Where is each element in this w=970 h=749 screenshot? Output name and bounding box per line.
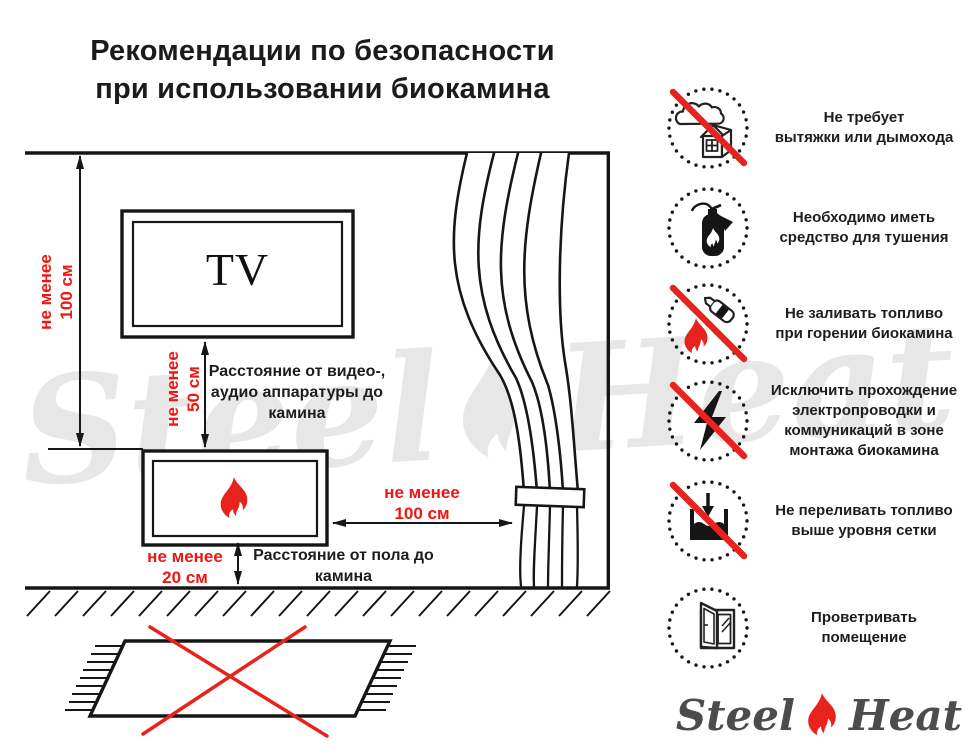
rule-caption: Проветривать помещение xyxy=(762,608,966,648)
steelheat-logo: Steel Heat xyxy=(676,687,962,743)
logo-heat: Heat xyxy=(849,691,962,740)
logo-steel: Steel xyxy=(676,691,795,740)
curtain-distance-label: не менее 100 см xyxy=(356,482,488,525)
tv-distance-label: не менее 50 см xyxy=(162,329,206,449)
floor-distance-label: не менее 20 см xyxy=(136,546,234,589)
no-refuel-while-burning-icon xyxy=(664,280,752,368)
rule-no-overfill: Не переливать топливо выше уровня сетки xyxy=(664,477,966,565)
wall-distance-label: не менее 100 см xyxy=(35,232,79,352)
fireplace-outline xyxy=(143,451,327,545)
extinguisher-icon xyxy=(664,184,752,272)
open-window-glyph xyxy=(701,603,734,648)
no-overfill-icon xyxy=(664,477,752,565)
tv-label: TV xyxy=(122,243,353,296)
curtain-tie xyxy=(516,487,585,507)
rule-no-chimney: Не требует вытяжки или дымохода xyxy=(664,84,966,172)
ventilate-room-icon xyxy=(664,584,752,672)
no-chimney-icon xyxy=(664,84,752,172)
rule-ventilate: Проветривать помещение xyxy=(664,584,966,672)
rule-caption: Необходимо иметь средство для тушения xyxy=(762,208,966,248)
floor-hatching xyxy=(27,591,610,616)
rule-caption: Не заливать топливо при горении биокамин… xyxy=(762,304,966,344)
floor-distance-caption: Расстояние от пола до камина xyxy=(246,546,441,588)
rule-caption: Не требует вытяжки или дымохода xyxy=(762,108,966,148)
rule-caption: Исключить прохождение электропроводки и … xyxy=(762,381,966,461)
no-electrical-wiring-icon xyxy=(664,377,752,465)
page-title: Рекомендации по безопасности при использ… xyxy=(25,33,620,108)
rule-caption: Не переливать топливо выше уровня сетки xyxy=(762,501,966,541)
tv-distance-caption: Расстояние от видео-, аудио аппаратуры д… xyxy=(202,362,392,424)
rule-no-refuel: Не заливать топливо при горении биокамин… xyxy=(664,280,966,368)
biofireplace-safety-poster: { "title": {"text": "Рекомендации по без… xyxy=(0,0,970,749)
carpet xyxy=(65,627,416,736)
floor xyxy=(25,588,610,616)
rule-no-wiring: Исключить прохождение электропроводки и … xyxy=(664,377,966,465)
extinguisher-glyph xyxy=(692,204,733,256)
logo-flame-icon xyxy=(799,687,845,743)
rule-extinguisher: Необходимо иметь средство для тушения xyxy=(664,184,966,272)
